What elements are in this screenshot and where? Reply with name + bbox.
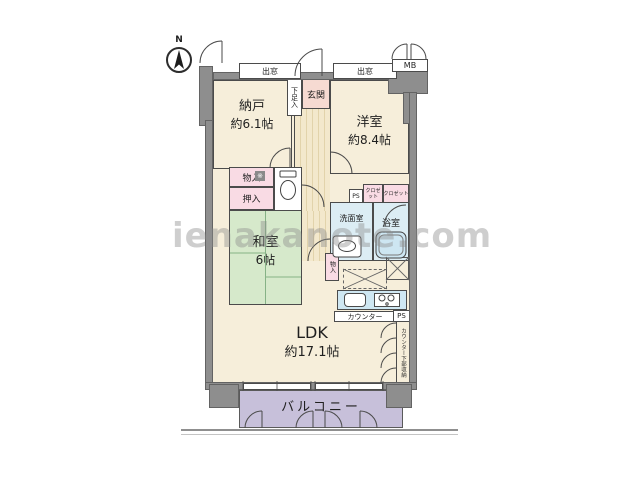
compass-icon [166,47,192,73]
room-washitsu-label: 和室 6帖 [229,234,302,268]
room-yokushitsu [373,202,409,261]
note-mark-icon: ※ [255,171,265,181]
window-icon [315,383,383,390]
yoshitsu-name: 洋室 [330,114,409,132]
nando-size: 約6.1帖 [218,116,286,132]
washitsu-size: 6帖 [229,252,302,268]
balcony-side-wall-left [209,384,239,408]
wall-left [205,120,213,388]
nando-name: 納戸 [218,98,286,116]
stove-icon [374,293,400,307]
mono-ire: 物入 [229,167,274,187]
oshi-ire-label: 押入 [242,192,260,205]
balcony-label: バルコニー [240,396,402,415]
refrigerator-space-icon [343,269,387,289]
yokushitsu-label: 浴室 [373,216,409,229]
counter-label-box: カウンター [334,311,396,322]
wall-left-pillar [199,66,213,126]
ground-line-2 [181,434,458,435]
room-yoshitsu-label: 洋室 約8.4帖 [330,114,409,148]
pipe-space-2: PS [393,310,410,322]
senmenshitsu-label: 洗面室 [330,213,373,224]
room-ldk-label: LDK 約17.1帖 [252,322,372,361]
counter-under-storage: カウンター下部収納 [396,322,409,384]
genkan-label: 玄関 [307,88,325,101]
mono-ire-small: 物入 [325,253,339,281]
window-icon [243,383,311,390]
balcony: バルコニー [239,390,403,428]
wall-right [409,92,417,388]
storage-x-icon [386,257,409,280]
oshi-ire: 押入 [229,187,274,210]
room-genkan: 玄関 [302,79,330,109]
meter-box: MB [392,59,428,72]
shoe-cabinet: 下足入 [287,79,302,116]
ground-line [181,429,458,431]
washitsu-name: 和室 [229,234,302,252]
closet-large: クロゼット [383,184,409,203]
toilet-room [274,167,302,211]
shoe-cabinet-label: 下足入 [290,87,300,108]
pipe-space-1: PS [349,189,363,203]
bay-window-right: 出窓 [333,63,397,79]
ldk-size: 約17.1帖 [252,344,372,362]
ldk-name: LDK [252,322,372,344]
sink-icon [344,293,366,307]
balcony-side-wall-right [386,384,412,408]
bay-window-left: 出窓 [239,63,301,79]
closet-small: クロゼット [363,184,383,203]
floor-plan: 納戸 約6.1帖 下足入 玄関 洋室 約8.4帖 物入 ※ 押入 和室 6帖 洗… [0,0,640,480]
compass-north-label: N [166,34,192,46]
room-nando-label: 納戸 約6.1帖 [218,98,286,132]
yoshitsu-size: 約8.4帖 [330,132,409,148]
